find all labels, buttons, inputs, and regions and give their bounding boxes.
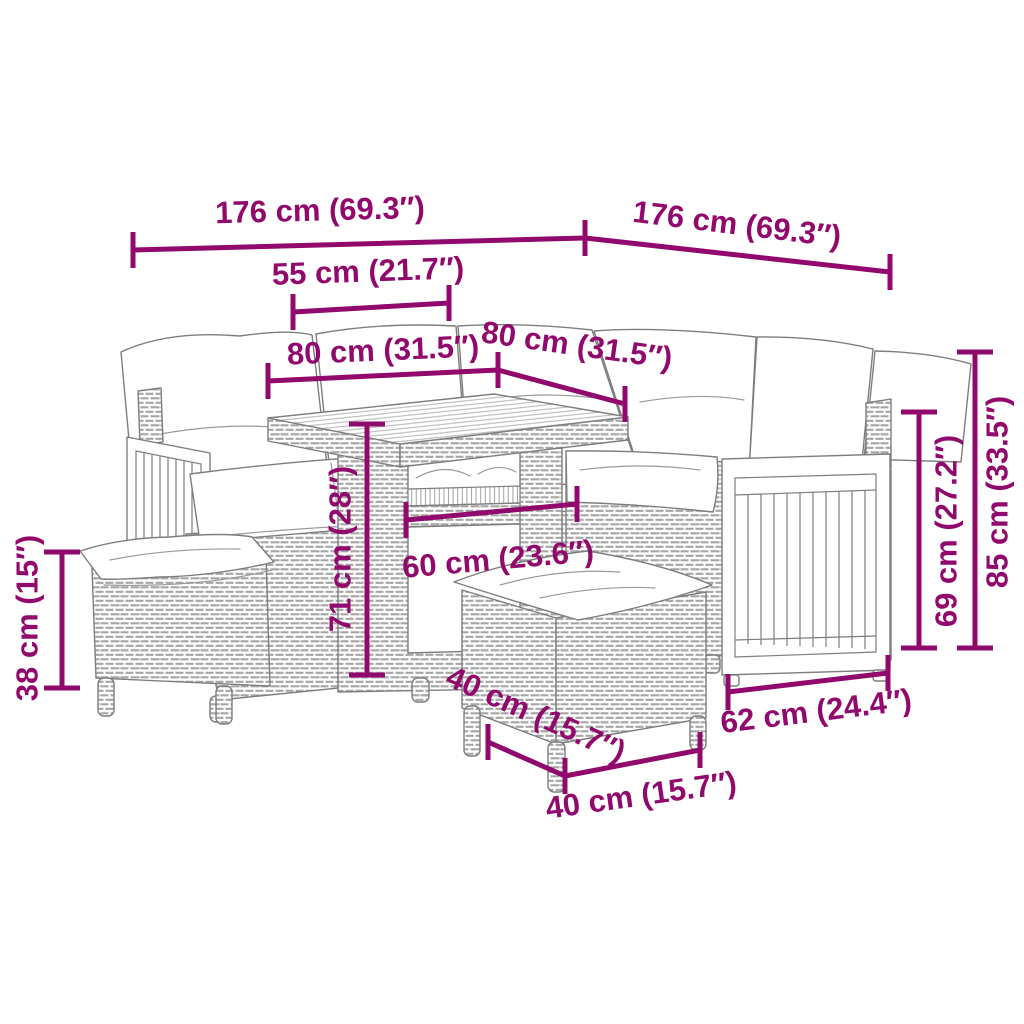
dim-table-offset: 55 cm (21.7″) <box>271 250 464 330</box>
left-back-post <box>138 388 163 445</box>
dim-table-offset-label: 55 cm (21.7″) <box>271 250 464 292</box>
dim-stool-height: 38 cm (15″) <box>10 535 81 702</box>
left-stool-leg <box>216 686 232 724</box>
dim-sofa-length-left-label: 176 cm (69.3″) <box>215 190 425 230</box>
right-armrest-panel <box>722 454 890 686</box>
dim-line <box>44 552 80 688</box>
dim-stool-height-label: 38 cm (15″) <box>10 535 45 702</box>
dim-table-height-label: 71 cm (28″) <box>323 466 358 633</box>
table-foot <box>412 678 429 702</box>
dim-total-height-label: 85 cm (33.5″) <box>980 396 1015 588</box>
product-dimension-diagram: 176 cm (69.3″) 176 cm (69.3″) 55 cm (21.… <box>0 0 1024 1024</box>
right-stool-leg <box>464 706 480 756</box>
dim-backrest-height-label: 69 cm (27.2″) <box>929 435 964 627</box>
dim-sofa-length-right: 176 cm (69.3″) <box>585 194 890 290</box>
back-cushion-5 <box>749 337 873 472</box>
right-seat-cushion <box>566 451 718 512</box>
left-stool-leg <box>98 678 114 716</box>
dim-line <box>293 285 449 330</box>
furniture-diagram-canvas: 176 cm (69.3″) 176 cm (69.3″) 55 cm (21.… <box>0 0 1024 1024</box>
dim-line <box>585 238 890 290</box>
